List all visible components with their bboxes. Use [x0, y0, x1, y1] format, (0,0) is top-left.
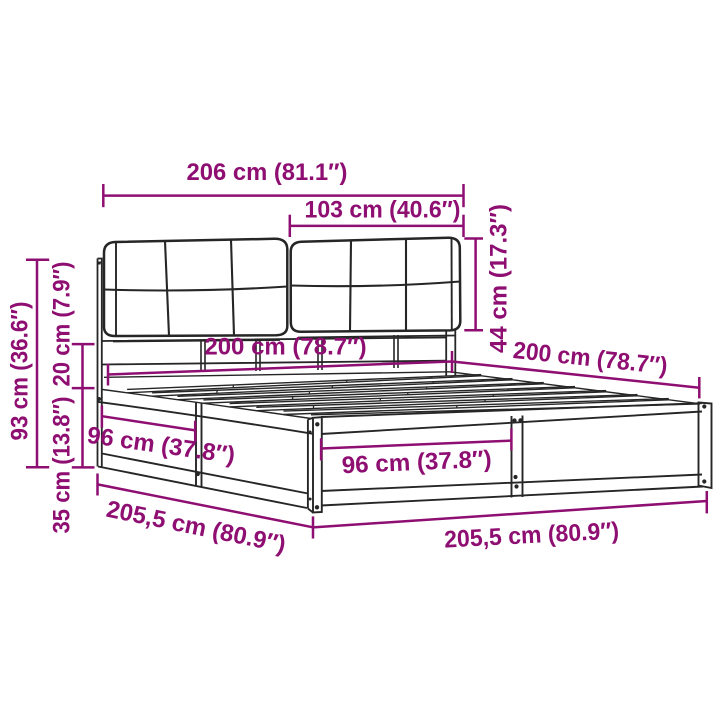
- svg-text:200 cm (78.7″): 200 cm (78.7″): [512, 337, 669, 380]
- svg-text:20 cm (7.9″): 20 cm (7.9″): [49, 262, 76, 387]
- svg-text:96 cm (37.8″): 96 cm (37.8″): [341, 446, 492, 480]
- svg-text:206 cm (81.1″): 206 cm (81.1″): [187, 159, 348, 186]
- svg-text:35 cm (13.8″): 35 cm (13.8″): [49, 397, 76, 534]
- svg-text:205,5 cm (80.9″): 205,5 cm (80.9″): [444, 517, 620, 553]
- svg-text:93 cm (36.6″): 93 cm (36.6″): [7, 302, 34, 441]
- svg-text:103 cm (40.6″): 103 cm (40.6″): [305, 197, 461, 224]
- svg-text:44 cm (17.3″): 44 cm (17.3″): [486, 204, 513, 353]
- svg-text:96 cm (37.8″): 96 cm (37.8″): [85, 422, 236, 469]
- svg-text:200 cm (78.7″): 200 cm (78.7″): [204, 334, 366, 361]
